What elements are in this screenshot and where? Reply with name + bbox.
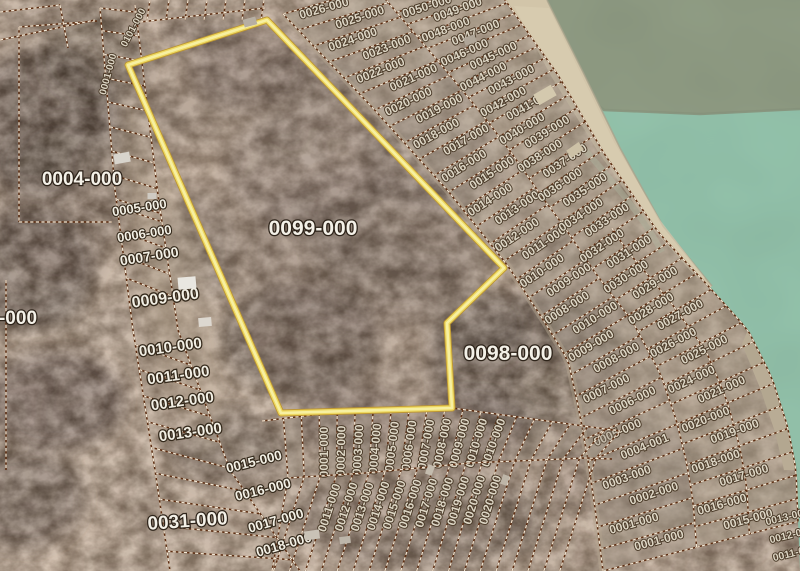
svg-text:0004-000: 0004-000	[42, 169, 122, 190]
svg-text:-000: -000	[0, 308, 37, 329]
svg-text:0002-000: 0002-000	[334, 425, 349, 476]
svg-text:0003-000: 0003-000	[350, 424, 367, 476]
svg-text:0001-000: 0001-000	[317, 426, 331, 477]
svg-text:0098-000: 0098-000	[464, 342, 553, 365]
svg-text:0099-000: 0099-000	[269, 217, 358, 240]
